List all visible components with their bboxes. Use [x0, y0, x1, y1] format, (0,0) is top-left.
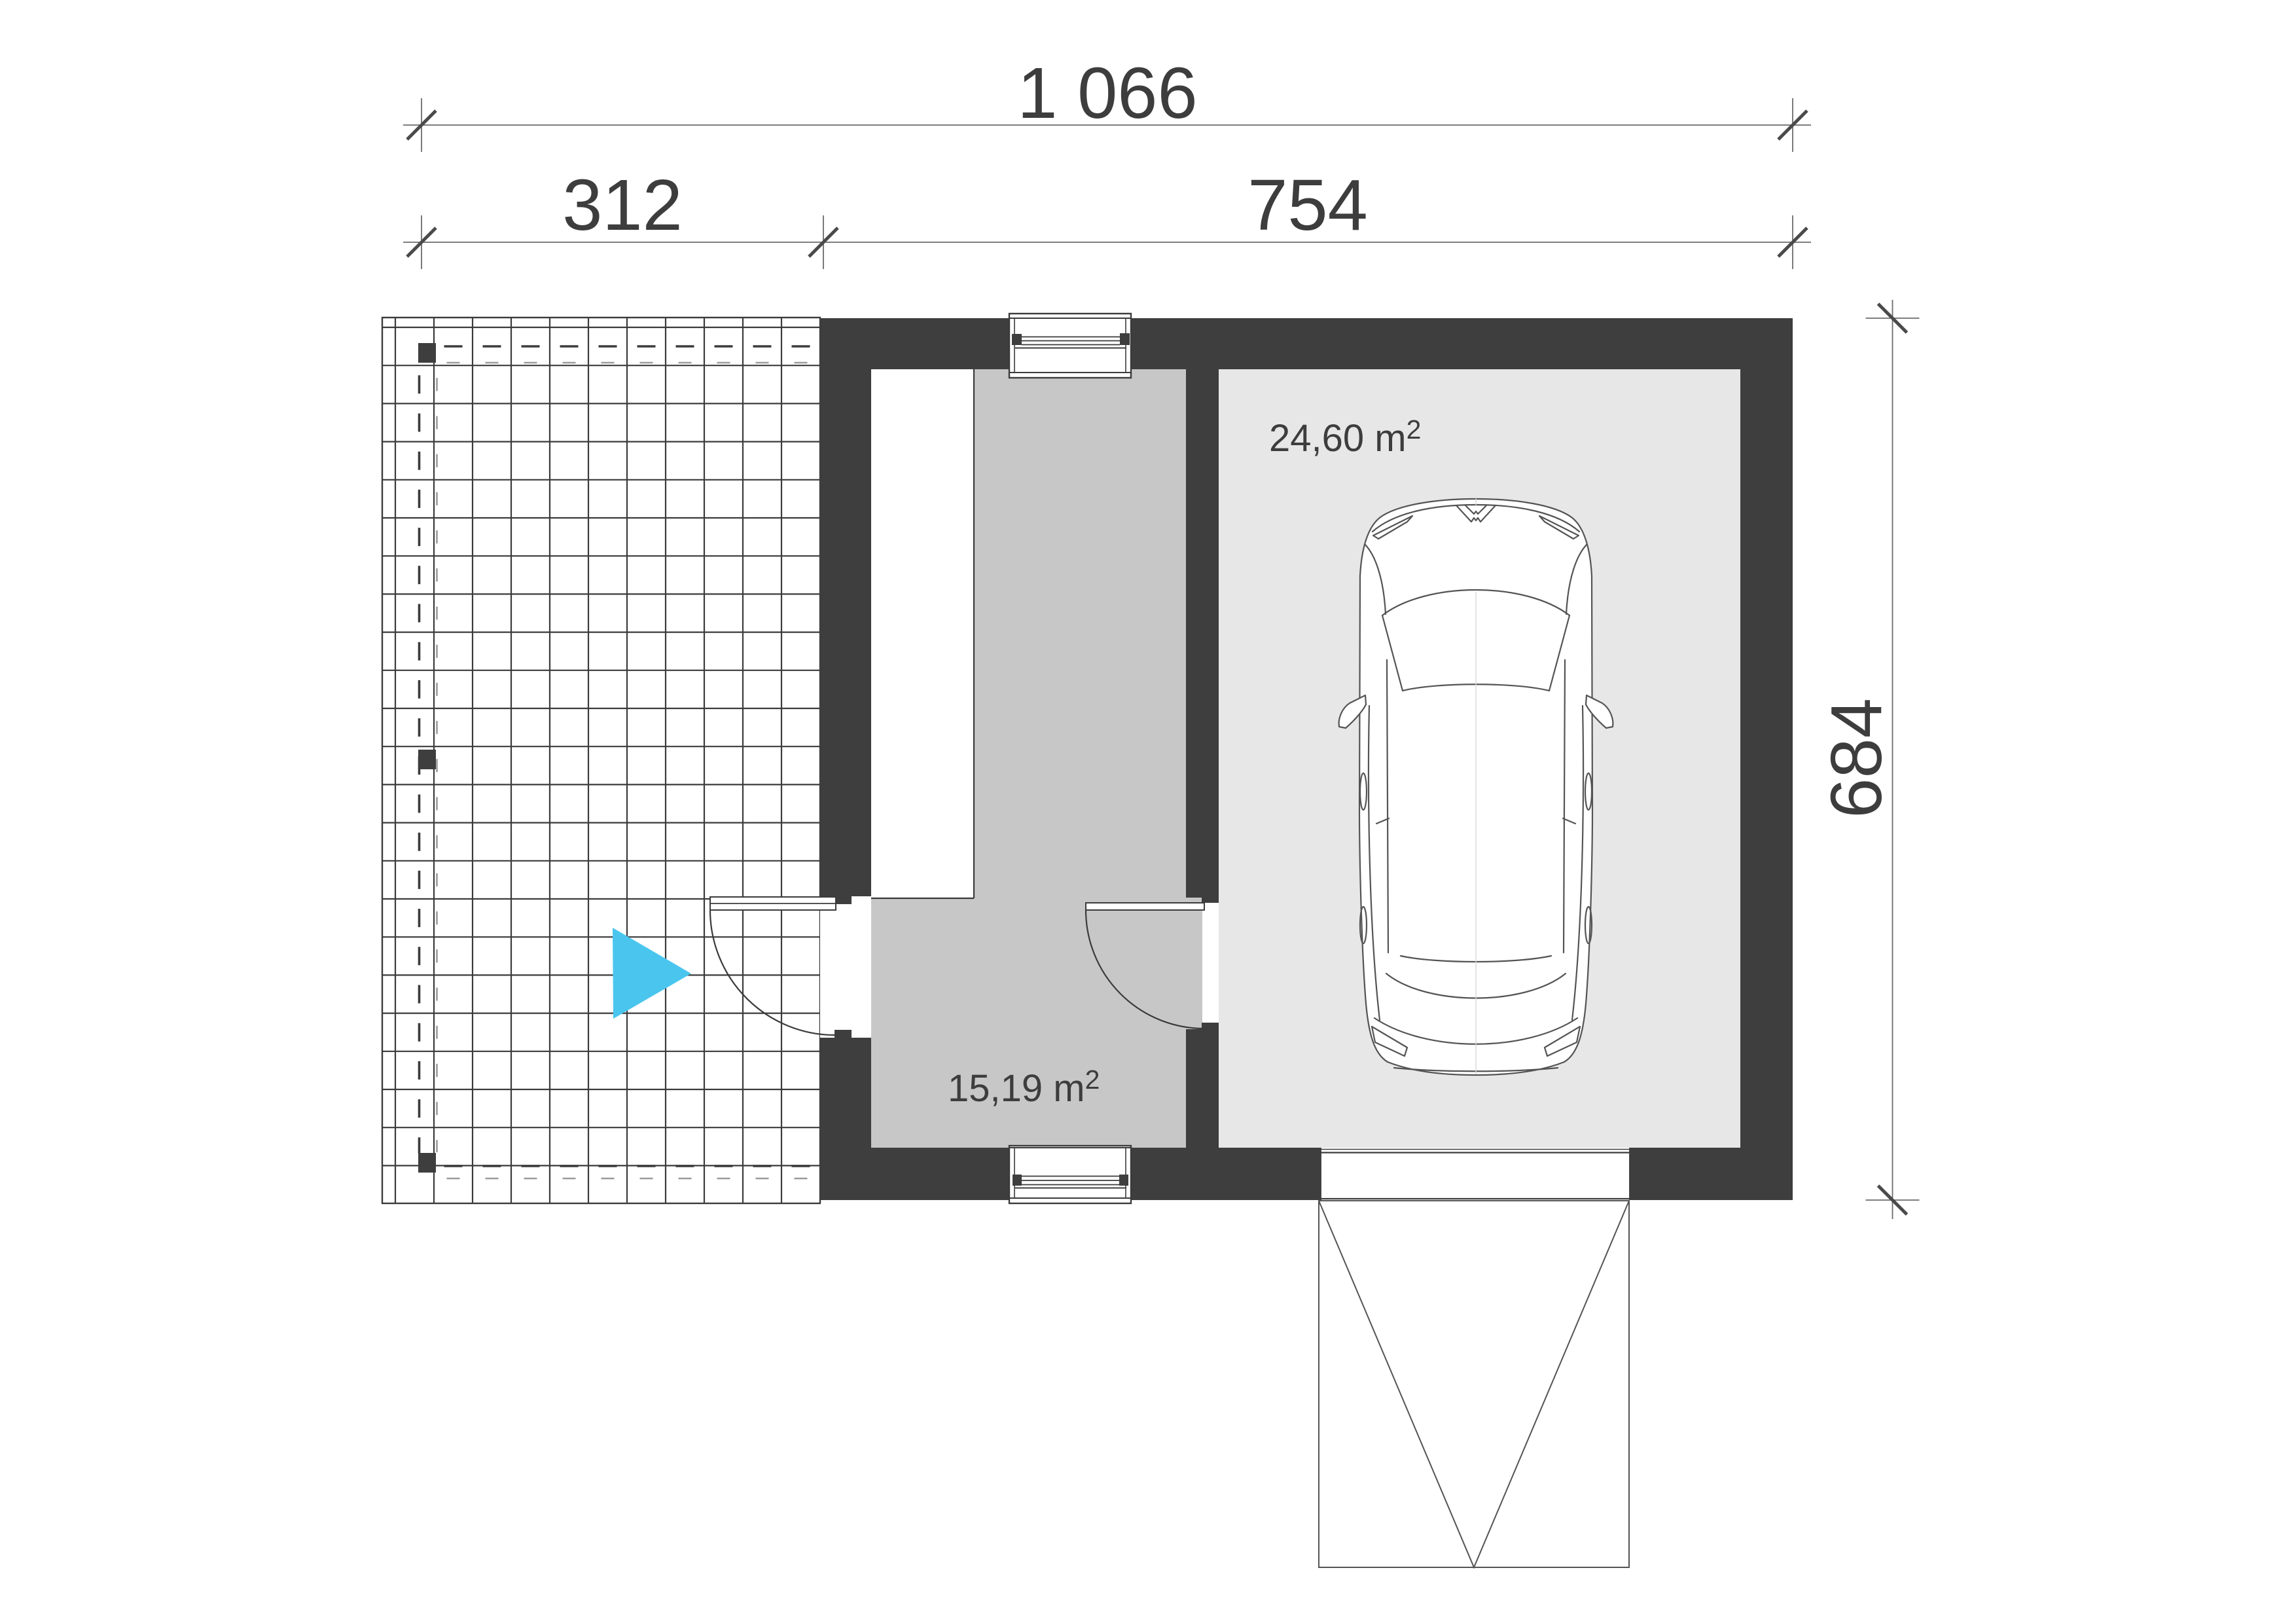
- svg-text:1 066: 1 066: [1017, 53, 1197, 134]
- svg-text:312: 312: [562, 165, 683, 246]
- svg-text:684: 684: [1816, 698, 1897, 818]
- svg-text:24,60 m2: 24,60 m2: [1269, 414, 1421, 460]
- svg-text:15,19 m2: 15,19 m2: [948, 1065, 1100, 1110]
- svg-text:754: 754: [1247, 165, 1368, 246]
